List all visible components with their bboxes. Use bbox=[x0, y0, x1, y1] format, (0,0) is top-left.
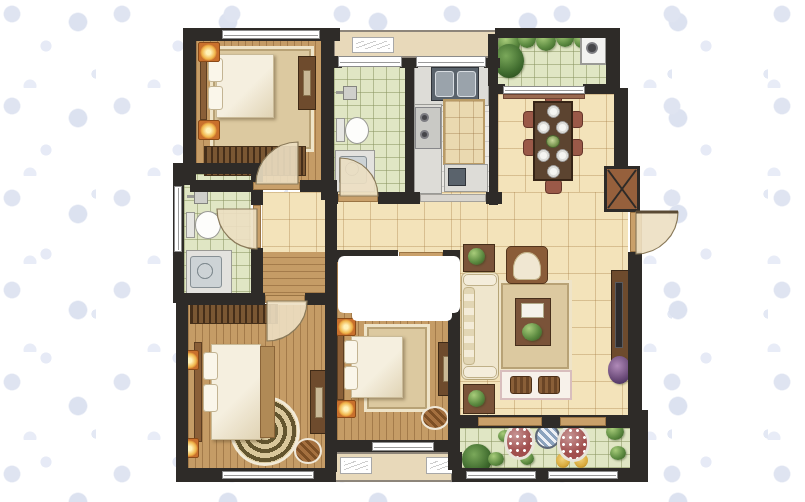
living-armchair bbox=[506, 246, 548, 284]
dining-plate-6 bbox=[547, 165, 560, 178]
window-balcony-dining-slider bbox=[503, 86, 585, 94]
balcony-bottom-bush-right-2 bbox=[610, 446, 626, 460]
bedroom1-bed-headboard bbox=[200, 52, 207, 120]
window-balcony-bottom-2 bbox=[548, 471, 618, 479]
wall-left-upper bbox=[183, 28, 196, 185]
bedroom1-dresser bbox=[298, 56, 316, 110]
bathroom-left-toilet-icon bbox=[195, 211, 221, 239]
master-bed bbox=[211, 344, 261, 440]
coffee-table-flowers-icon bbox=[522, 323, 542, 341]
threshold-entry-door bbox=[630, 212, 642, 252]
bathroom-top-shower-head-icon bbox=[343, 86, 357, 100]
wall-bedroom1-south-a bbox=[190, 180, 253, 192]
balcony-ball-chair-left bbox=[504, 423, 535, 460]
wall-balcony-bay-stub bbox=[448, 452, 462, 470]
bedroom2-pillow-2 bbox=[344, 366, 358, 390]
master-bed-foot-blanket bbox=[260, 346, 275, 438]
wall-bedroom1-right bbox=[321, 28, 334, 200]
wall-balcony-top-right bbox=[606, 28, 620, 92]
utility-shaft bbox=[604, 166, 640, 212]
floor-plan bbox=[0, 0, 805, 502]
window-master-bottom bbox=[222, 471, 314, 479]
ac-label-plate-bottom-1 bbox=[340, 457, 372, 474]
dining-plate-4 bbox=[537, 149, 550, 162]
threshold-living-balcony-2 bbox=[560, 417, 606, 426]
master-pillow-2 bbox=[203, 384, 218, 412]
wall-balcony-top-bottom-stub-right bbox=[583, 84, 616, 94]
bedroom2-bed-headboard bbox=[337, 334, 344, 400]
window-kitchen-top bbox=[416, 56, 486, 67]
wall-kitchen-south-a bbox=[405, 192, 420, 204]
master-pillow-1 bbox=[203, 352, 218, 380]
bedroom2-lamp-bottom-icon bbox=[338, 401, 354, 417]
bedroom2-pillow-1 bbox=[344, 340, 358, 364]
kitchen-burner-2 bbox=[420, 130, 429, 139]
wall-bath-kitchen-divider bbox=[405, 63, 414, 194]
entry-door-arc bbox=[636, 212, 678, 254]
kitchen-burner-1 bbox=[420, 113, 429, 122]
kitchen-cooktop-icon bbox=[415, 107, 441, 149]
tv-screen-icon bbox=[615, 282, 623, 348]
threshold-master-door bbox=[265, 295, 305, 303]
window-bedroom1-top bbox=[222, 30, 320, 39]
bedroom2-stool bbox=[421, 406, 449, 430]
bathroom-top-sink-icon bbox=[339, 156, 367, 184]
threshold-kitchen-door bbox=[420, 194, 486, 202]
kitchen-sink-basin-1 bbox=[435, 71, 454, 97]
kitchen-island bbox=[443, 99, 485, 165]
bedroom1-lamp-bottom-icon bbox=[200, 122, 217, 139]
media-bench-cushion-2 bbox=[538, 376, 560, 394]
dining-plate-3 bbox=[556, 121, 569, 134]
bathroom-left-shower-head-icon bbox=[194, 190, 208, 204]
living-side-plant-bottom bbox=[468, 390, 485, 407]
coffee-table-tray bbox=[521, 303, 544, 318]
bedroom1-lamp-top-icon bbox=[200, 44, 217, 61]
window-bathroom-top bbox=[338, 56, 402, 67]
ac-label-plate-top bbox=[352, 37, 394, 53]
white-redaction-patch-2 bbox=[352, 298, 452, 321]
wall-bathtop-south-a bbox=[330, 192, 338, 204]
dining-plate-5 bbox=[556, 149, 569, 162]
threshold-bathroom-left-door bbox=[253, 205, 261, 248]
master-stool bbox=[294, 438, 322, 464]
bathroom-top-toilet-tank bbox=[336, 118, 345, 142]
media-bench-cushion-1 bbox=[510, 376, 532, 394]
washing-machine-drum bbox=[586, 42, 598, 54]
threshold-bathroom-top-door bbox=[338, 194, 378, 202]
wall-master-north-b bbox=[305, 293, 337, 305]
kitchen-appliance-icon bbox=[448, 168, 466, 186]
wall-bathroom-left-east-b bbox=[251, 248, 263, 303]
wall-balcony-top bbox=[495, 28, 617, 38]
bedroom1-bed bbox=[216, 54, 274, 118]
balcony-ball-chair-right bbox=[557, 424, 590, 462]
wall-master-left bbox=[176, 298, 188, 482]
window-bedroom2-south bbox=[372, 442, 434, 451]
master-wardrobe bbox=[190, 304, 278, 324]
living-sofa-back-cushions bbox=[463, 287, 475, 365]
dining-plate-2 bbox=[537, 121, 550, 134]
living-side-plant-top bbox=[468, 248, 485, 265]
dining-chair-bottom bbox=[545, 179, 562, 194]
threshold-bedroom1-door bbox=[253, 182, 300, 190]
wall-dining-right bbox=[614, 88, 628, 168]
bathroom-left-sink-icon bbox=[190, 256, 222, 288]
bathroom-left-toilet-tank bbox=[186, 212, 195, 238]
wall-bedroom2-west bbox=[325, 180, 337, 472]
bedroom2-bed bbox=[351, 336, 403, 398]
living-sofa-arm-bottom bbox=[463, 366, 497, 378]
window-balcony-bottom-1 bbox=[466, 471, 536, 479]
dining-plate-1 bbox=[547, 105, 560, 118]
kitchen-sink-basin-2 bbox=[457, 71, 476, 97]
wall-kitchen-south-b bbox=[486, 192, 502, 204]
bedroom2-lamp-top-icon bbox=[338, 319, 354, 335]
threshold-living-balcony-1 bbox=[478, 417, 542, 426]
bathroom-top-toilet-icon bbox=[345, 117, 369, 144]
bedroom1-pillow-2 bbox=[208, 86, 223, 110]
window-bathroom-left-wall bbox=[174, 186, 182, 252]
living-sofa-arm-top bbox=[463, 274, 497, 286]
wall-living-east bbox=[628, 252, 642, 418]
balcony-bottom-bush-1 bbox=[488, 452, 504, 466]
wall-bathroom-left-top bbox=[173, 163, 263, 174]
threshold-dining-balcony bbox=[503, 94, 585, 99]
wall-chunk-bay-3 bbox=[484, 58, 500, 68]
wall-bedroom1-south-b bbox=[300, 180, 325, 192]
dining-centerpiece-icon bbox=[546, 135, 560, 148]
